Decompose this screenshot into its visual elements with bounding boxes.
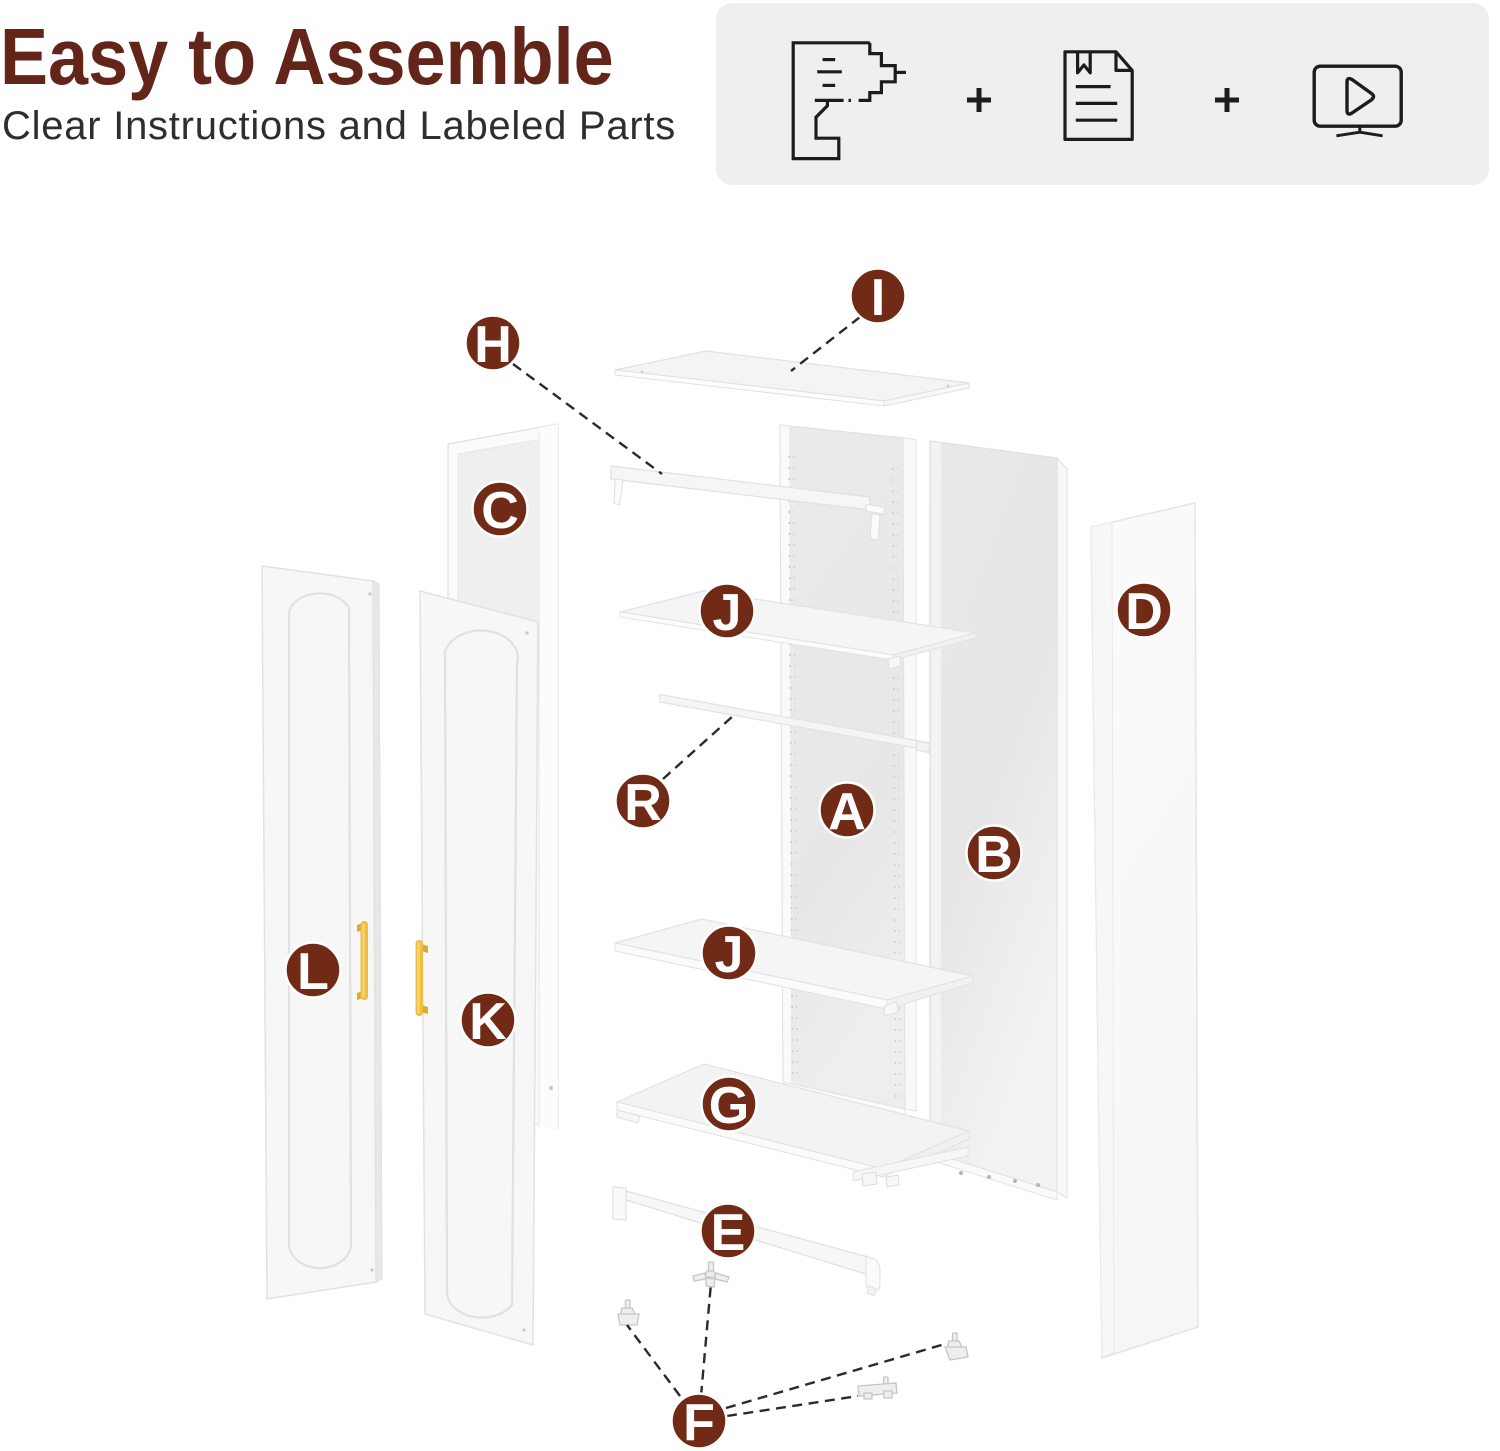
svg-text:K: K bbox=[469, 993, 507, 1051]
svg-text:L: L bbox=[297, 943, 329, 1001]
svg-text:C: C bbox=[481, 482, 519, 540]
svg-text:F: F bbox=[683, 1394, 715, 1451]
svg-text:R: R bbox=[624, 774, 662, 832]
svg-text:I: I bbox=[871, 269, 885, 327]
svg-text:E: E bbox=[711, 1204, 746, 1262]
svg-text:J: J bbox=[715, 926, 744, 984]
svg-text:G: G bbox=[709, 1077, 749, 1135]
svg-text:A: A bbox=[828, 783, 866, 841]
svg-text:B: B bbox=[975, 826, 1013, 884]
svg-text:D: D bbox=[1125, 583, 1163, 641]
svg-text:J: J bbox=[713, 584, 742, 642]
svg-text:H: H bbox=[474, 316, 512, 374]
